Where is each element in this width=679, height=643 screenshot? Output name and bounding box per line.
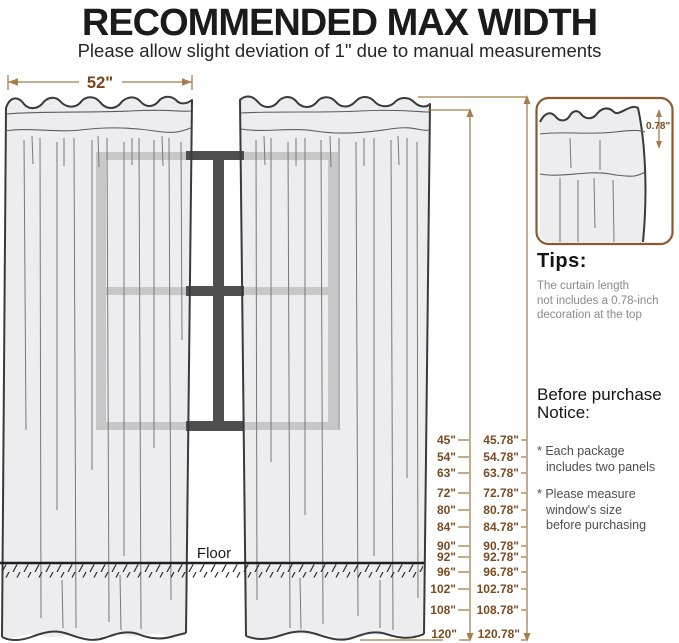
notice-heading: Before purchase Notice: bbox=[537, 386, 662, 422]
size-label: 63" bbox=[437, 466, 456, 480]
decoration-height-label: 0.78" bbox=[646, 121, 670, 132]
total-size-label: 80.78" bbox=[483, 503, 519, 517]
size-label: 54" bbox=[437, 450, 456, 464]
panel-width-label: 52" bbox=[87, 74, 113, 92]
size-label: 72" bbox=[437, 486, 456, 500]
bullet-line: includes two panels bbox=[537, 460, 655, 476]
floor-hatching bbox=[2, 565, 423, 578]
ruler-total-labels: 45.78" 54.78" 63.78" 72.78" 80.78" 84.78… bbox=[477, 433, 520, 641]
bullet-line: window's size bbox=[537, 503, 646, 519]
size-label: 84" bbox=[437, 520, 456, 534]
total-size-label: 45.78" bbox=[483, 433, 519, 447]
tips-curtain-detail bbox=[540, 107, 645, 242]
total-size-label: 120.78" bbox=[478, 627, 520, 641]
ruler-base-labels: 45" 54" 63" 72" 80" 84" 90" 92" 96" 102"… bbox=[430, 433, 457, 641]
total-size-label: 102.78" bbox=[477, 582, 519, 596]
bullet-line: * Please measure bbox=[537, 487, 646, 503]
total-size-label: 54.78" bbox=[483, 450, 519, 464]
tips-detail-box: 0.78" bbox=[537, 98, 673, 244]
bullet-line: * Each package bbox=[537, 444, 655, 460]
tips-line: not includes a 0.78-inch bbox=[537, 294, 658, 309]
size-label: 45" bbox=[437, 433, 456, 447]
tips-line: The curtain length bbox=[537, 279, 658, 294]
total-size-label: 96.78" bbox=[483, 565, 519, 579]
size-label: 80" bbox=[437, 503, 456, 517]
bullet-line: before purchasing bbox=[537, 518, 646, 534]
notice-heading-line: Notice: bbox=[537, 404, 662, 422]
size-label: 102" bbox=[430, 582, 456, 596]
size-label: 96" bbox=[437, 565, 456, 579]
window-frame-exposed bbox=[186, 151, 244, 431]
floor-label: Floor bbox=[197, 545, 231, 562]
tips-heading: Tips: bbox=[537, 250, 587, 273]
total-size-label: 84.78" bbox=[483, 520, 519, 534]
notice-bullet-measure: * Please measure window's size before pu… bbox=[537, 487, 646, 534]
size-label: 92" bbox=[437, 550, 456, 564]
tips-body: The curtain length not includes a 0.78-i… bbox=[537, 279, 658, 323]
size-label: 120" bbox=[431, 627, 457, 641]
total-size-label: 63.78" bbox=[483, 466, 519, 480]
notice-heading-line: Before purchase bbox=[537, 386, 662, 404]
width-dimension: 52" bbox=[8, 74, 192, 92]
total-size-label: 92.78" bbox=[483, 550, 519, 564]
notice-bullet-packages: * Each package includes two panels bbox=[537, 444, 655, 475]
size-label: 108" bbox=[430, 603, 456, 617]
total-size-label: 72.78" bbox=[483, 486, 519, 500]
curtain-size-infographic: RECOMMENDED MAX WIDTH Please allow sligh… bbox=[0, 0, 679, 643]
tips-line: decoration at the top bbox=[537, 308, 658, 323]
total-size-label: 108.78" bbox=[477, 603, 519, 617]
